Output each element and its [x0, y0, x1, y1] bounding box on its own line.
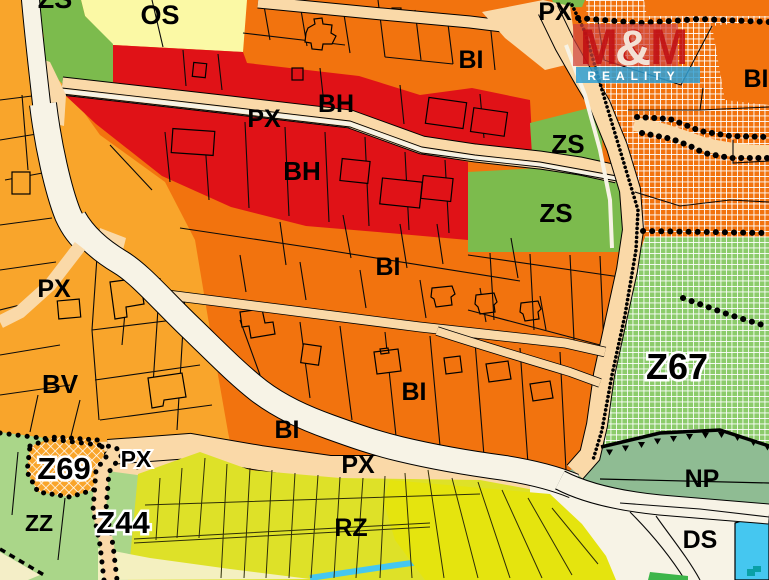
- svg-text:BI: BI: [744, 65, 769, 93]
- svg-text:PX: PX: [247, 105, 281, 133]
- svg-text:ZS: ZS: [539, 198, 572, 228]
- svg-text:ZZ: ZZ: [25, 510, 53, 536]
- svg-text:RZ: RZ: [334, 514, 367, 542]
- svg-text:PX: PX: [538, 0, 572, 26]
- svg-text:BH: BH: [283, 156, 321, 186]
- svg-text:BI: BI: [402, 378, 427, 406]
- svg-text:REALITY: REALITY: [587, 69, 680, 83]
- svg-text:BI: BI: [376, 253, 401, 281]
- svg-text:NP: NP: [685, 465, 720, 493]
- svg-text:Z67: Z67: [646, 346, 708, 387]
- svg-text:BV: BV: [42, 369, 79, 399]
- svg-text:PX: PX: [341, 451, 375, 479]
- svg-text:OS: OS: [140, 0, 179, 30]
- svg-text:BI: BI: [275, 416, 300, 444]
- svg-text:Z69: Z69: [37, 451, 90, 486]
- svg-text:BI: BI: [459, 46, 484, 74]
- svg-text:DS: DS: [683, 526, 718, 554]
- svg-text:PX: PX: [121, 446, 152, 472]
- svg-text:ZS: ZS: [38, 0, 73, 14]
- svg-text:ZS: ZS: [551, 129, 584, 159]
- svg-text:PX: PX: [37, 275, 71, 303]
- svg-text:BH: BH: [318, 90, 354, 118]
- svg-text:Z44: Z44: [96, 505, 150, 540]
